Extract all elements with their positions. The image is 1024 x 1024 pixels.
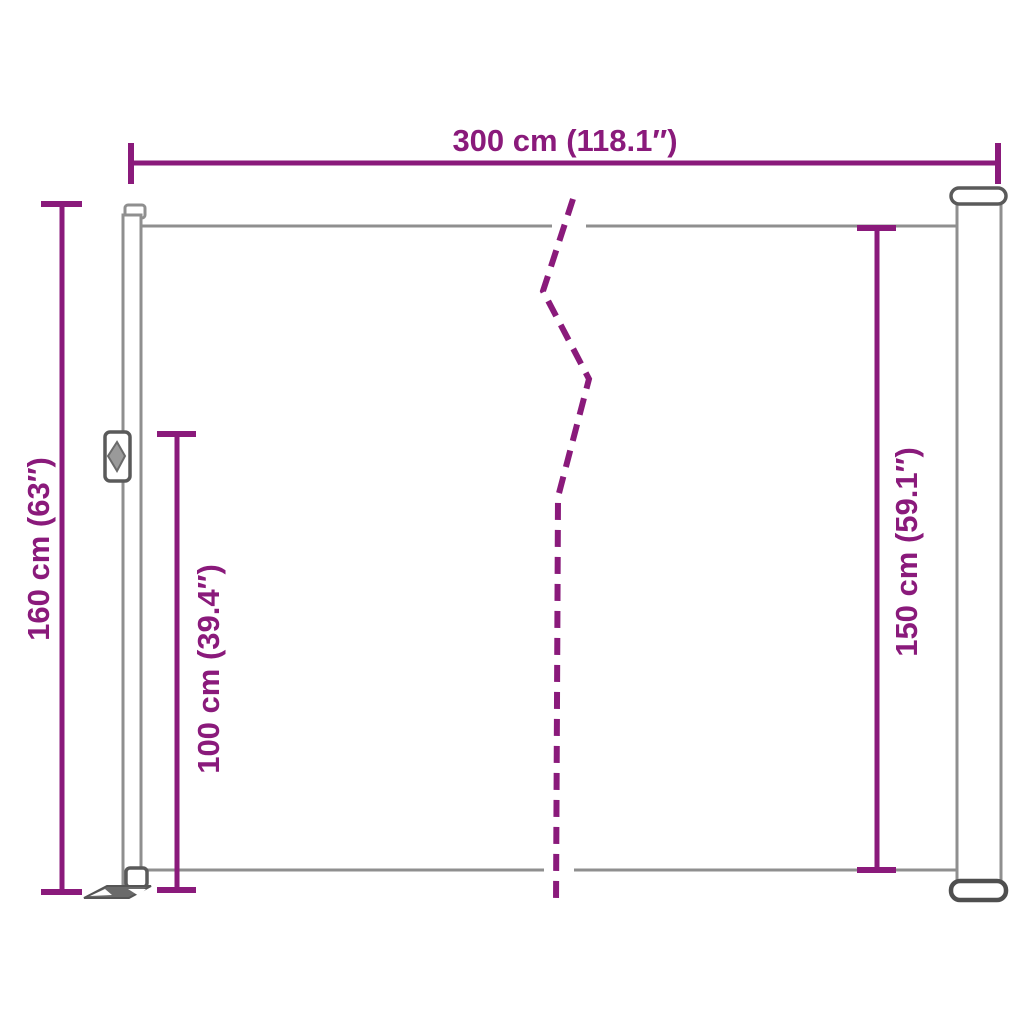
pole-bottom-bracket: [126, 868, 147, 887]
dimension-width-total: 300 cm (118.1″): [131, 123, 998, 184]
diagram-canvas: 300 cm (118.1″) 160 cm (63″) 100 cm (39.…: [0, 0, 1024, 1024]
left-pole: [123, 215, 141, 887]
cassette-bottom-cap: [951, 881, 1006, 900]
cassette-top-cap: [951, 188, 1006, 204]
width-dimension-label: 300 cm (118.1″): [452, 123, 677, 158]
height-total-dimension-label: 160 cm (63″): [21, 457, 56, 641]
fabric-break-line: [543, 199, 589, 906]
dimension-height-fabric: 150 cm (59.1″): [857, 228, 924, 870]
dimension-height-total: 160 cm (63″): [21, 204, 82, 892]
dimension-height-pole: 100 cm (39.4″): [157, 434, 226, 890]
cassette-body: [957, 196, 1001, 886]
height-fabric-dimension-label: 150 cm (59.1″): [889, 447, 924, 657]
awning-dimension-diagram: 300 cm (118.1″) 160 cm (63″) 100 cm (39.…: [0, 0, 1024, 1024]
height-pole-dimension-label: 100 cm (39.4″): [191, 564, 226, 774]
